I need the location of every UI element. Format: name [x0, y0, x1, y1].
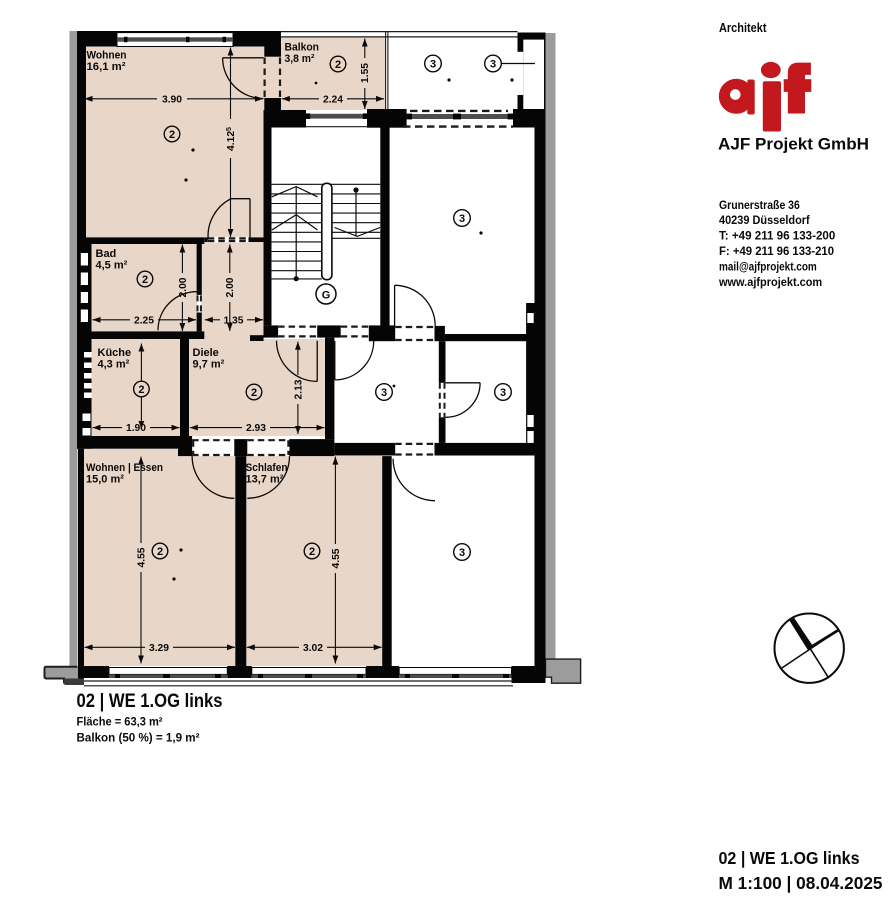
svg-text:40239 Düsseldorf: 40239 Düsseldorf [719, 213, 811, 227]
svg-text:1.90: 1.90 [126, 423, 146, 434]
svg-text:3: 3 [381, 387, 387, 399]
svg-text:Grunerstraße 36: Grunerstraße 36 [719, 198, 800, 212]
svg-text:3: 3 [500, 387, 506, 399]
svg-text:2: 2 [309, 546, 315, 558]
svg-text:3.29: 3.29 [149, 643, 169, 654]
svg-text:02 | WE 1.OG links: 02 | WE 1.OG links [77, 690, 223, 712]
svg-text:4,5 m²: 4,5 m² [96, 260, 128, 272]
svg-text:4.55: 4.55 [331, 548, 342, 568]
svg-text:M 1:100 | 08.04.2025: M 1:100 | 08.04.2025 [719, 873, 883, 893]
svg-text:Fläche = 63,3 m²: Fläche = 63,3 m² [77, 715, 163, 729]
svg-text:F: +49 211 96 133-210: F: +49 211 96 133-210 [719, 244, 834, 258]
svg-text:3: 3 [459, 547, 465, 559]
svg-text:AJF Projekt GmbH: AJF Projekt GmbH [718, 135, 869, 154]
svg-text:Küche: Küche [98, 347, 132, 359]
svg-text:13,7 m²: 13,7 m² [246, 474, 284, 486]
svg-text:2.25: 2.25 [134, 315, 154, 326]
svg-text:3: 3 [490, 59, 496, 71]
svg-text:2.13: 2.13 [293, 379, 304, 399]
svg-text:mail@ajfprojekt.com: mail@ajfprojekt.com [719, 259, 817, 273]
svg-text:2.93: 2.93 [246, 423, 266, 434]
svg-text:2: 2 [138, 384, 144, 396]
svg-text:Architekt: Architekt [719, 21, 767, 35]
svg-text:3.90: 3.90 [162, 94, 182, 105]
svg-text:2.00: 2.00 [225, 277, 236, 297]
svg-text:3: 3 [459, 213, 465, 225]
svg-text:3: 3 [430, 59, 436, 71]
svg-text:G: G [322, 289, 331, 301]
svg-text:9,7 m²: 9,7 m² [193, 359, 225, 371]
svg-text:Balkon (50 %) = 1,9 m²: Balkon (50 %) = 1,9 m² [77, 731, 200, 745]
svg-text:02 | WE 1.OG links: 02 | WE 1.OG links [719, 848, 860, 868]
svg-text:www.ajfprojekt.com: www.ajfprojekt.com [718, 275, 822, 289]
svg-text:2: 2 [169, 129, 175, 141]
svg-text:2.00: 2.00 [178, 277, 189, 297]
svg-text:1.35: 1.35 [223, 315, 243, 326]
svg-text:2.24: 2.24 [323, 94, 343, 105]
svg-text:Wohnen | Essen: Wohnen | Essen [86, 462, 163, 474]
svg-text:2: 2 [142, 274, 148, 286]
svg-text:4.55: 4.55 [136, 547, 147, 567]
svg-text:2: 2 [251, 387, 257, 399]
svg-text:Diele: Diele [193, 347, 219, 359]
svg-text:1.55: 1.55 [360, 63, 371, 83]
svg-text:Wohnen: Wohnen [87, 50, 127, 62]
svg-text:3,8 m²: 3,8 m² [285, 53, 315, 65]
svg-text:T: +49 211 96 133-200: T: +49 211 96 133-200 [719, 229, 835, 243]
svg-text:2: 2 [157, 546, 163, 558]
svg-text:Bad: Bad [96, 248, 117, 260]
svg-text:4,3 m²: 4,3 m² [98, 359, 130, 371]
svg-text:2: 2 [335, 59, 341, 71]
svg-text:16,1 m²: 16,1 m² [87, 61, 126, 73]
svg-text:Schlafen: Schlafen [246, 462, 288, 474]
svg-text:3.02: 3.02 [303, 643, 323, 654]
svg-text:Balkon: Balkon [285, 42, 320, 54]
svg-text:15,0 m²: 15,0 m² [86, 474, 124, 486]
